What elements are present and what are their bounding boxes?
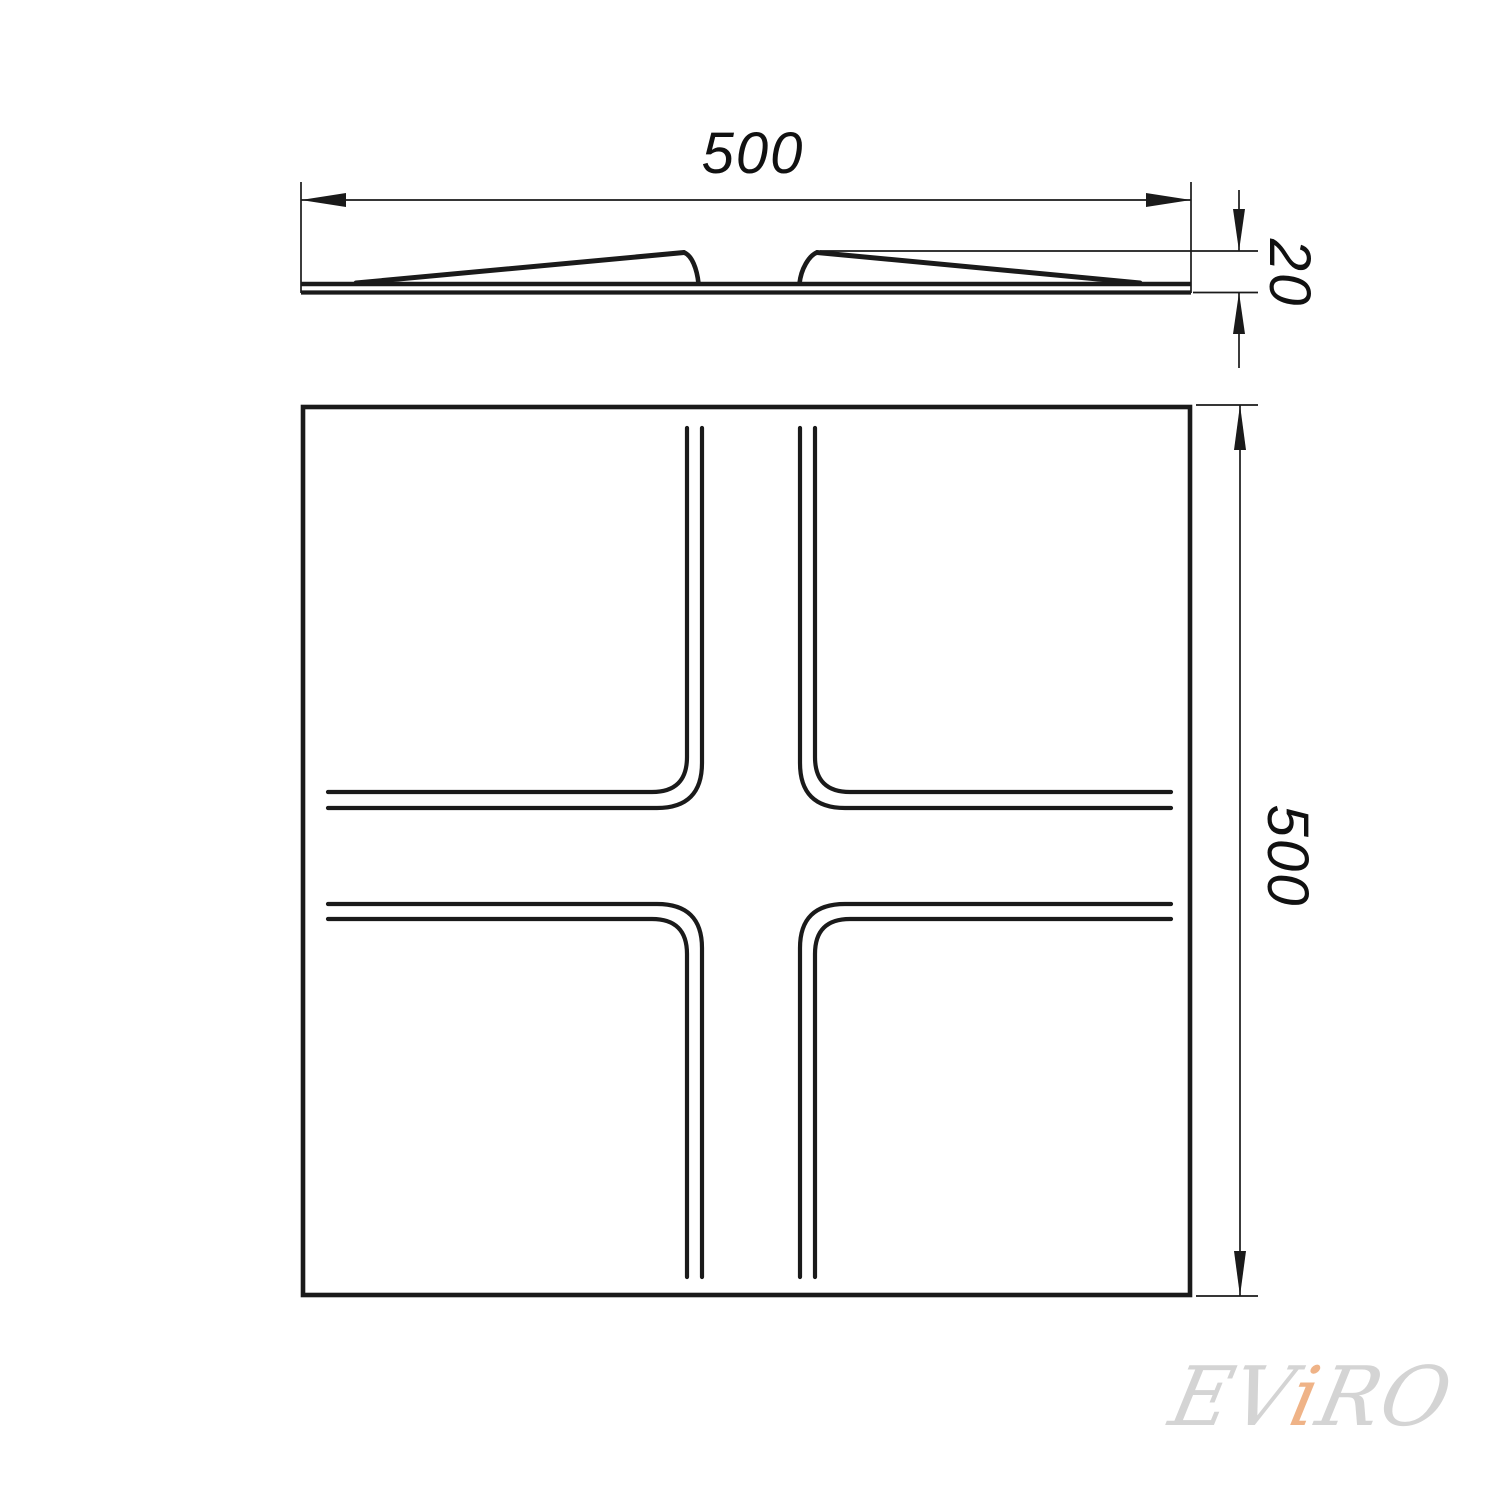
dimension-height [1196,405,1258,1296]
thickness-arrow-down [1233,209,1245,251]
profile-left-ridge-slope [356,253,684,284]
groove-top-right-outer [800,428,1171,808]
height-arrow-up [1234,405,1246,450]
groove-bottom-right-inner [815,919,1171,1277]
brand-watermark: EViRO [1128,1348,1491,1458]
groove-top-left-outer [328,428,702,808]
width-arrow-left [301,193,346,207]
profile-view [301,253,1191,293]
dimension-thickness [820,190,1258,368]
profile-right-ridge-drop [800,253,818,284]
drawing-sheet: 500 500 20 EViRO [0,0,1500,1500]
thickness-arrow-up [1233,293,1245,335]
groove-bottom-left-outer [328,904,702,1277]
watermark-text-ro: RO [1309,1350,1460,1445]
watermark-text-ev: EV [1162,1350,1302,1445]
profile-left-ridge-drop [684,253,699,284]
groove-top-left-inner [328,428,687,792]
panel-outline [303,407,1190,1295]
front-view [303,407,1190,1295]
groove-bottom-right-outer [800,904,1171,1277]
height-dimension-value: 500 [1258,763,1316,949]
groove-top-right-inner [815,428,1171,792]
thickness-dimension-value: 20 [1260,203,1318,343]
width-arrow-right [1146,193,1191,207]
width-dimension-value: 500 [653,120,853,187]
groove-pattern [328,428,1171,1277]
profile-right-ridge-slope [817,253,1140,284]
groove-bottom-left-inner [328,919,687,1277]
height-arrow-down [1234,1251,1246,1296]
